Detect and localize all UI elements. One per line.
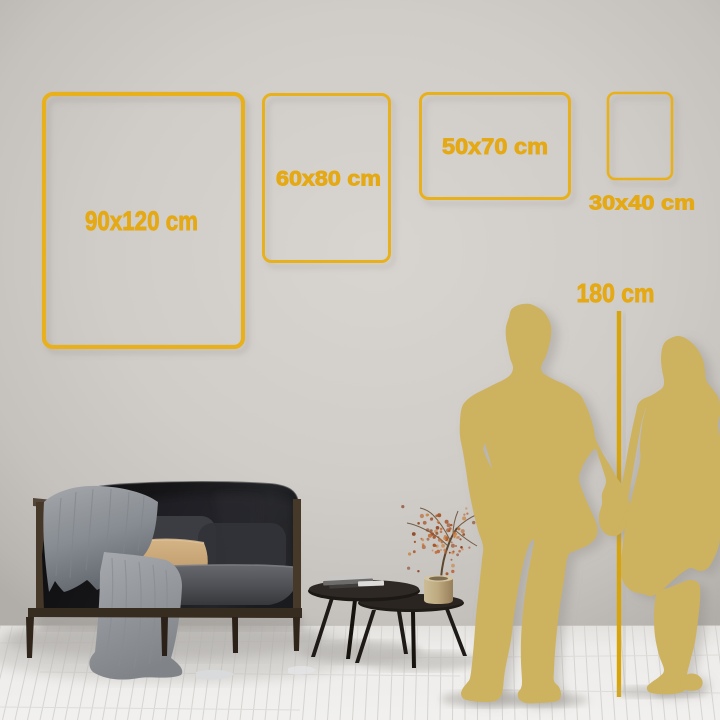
svg-text:60x80 cm: 60x80 cm [276,168,381,191]
svg-text:30x40 cm: 30x40 cm [589,193,695,215]
svg-text:50x70 cm: 50x70 cm [442,134,548,159]
svg-text:180 cm: 180 cm [577,278,655,308]
svg-text:90x120 cm: 90x120 cm [85,206,198,236]
